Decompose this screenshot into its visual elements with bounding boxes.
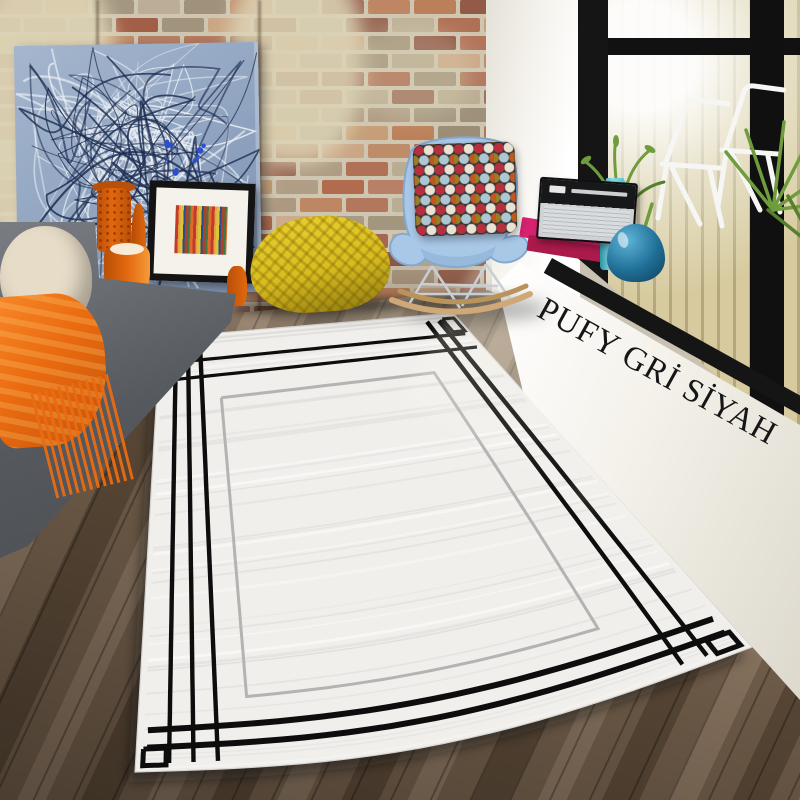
orange-goblet-rim	[110, 243, 144, 255]
patterned-pillow	[412, 141, 517, 237]
living-room-scene: PUFY GRİ SİYAH	[0, 0, 800, 800]
radio-scale	[571, 189, 627, 197]
stripe-print	[174, 205, 228, 255]
radio-dial	[549, 185, 565, 193]
